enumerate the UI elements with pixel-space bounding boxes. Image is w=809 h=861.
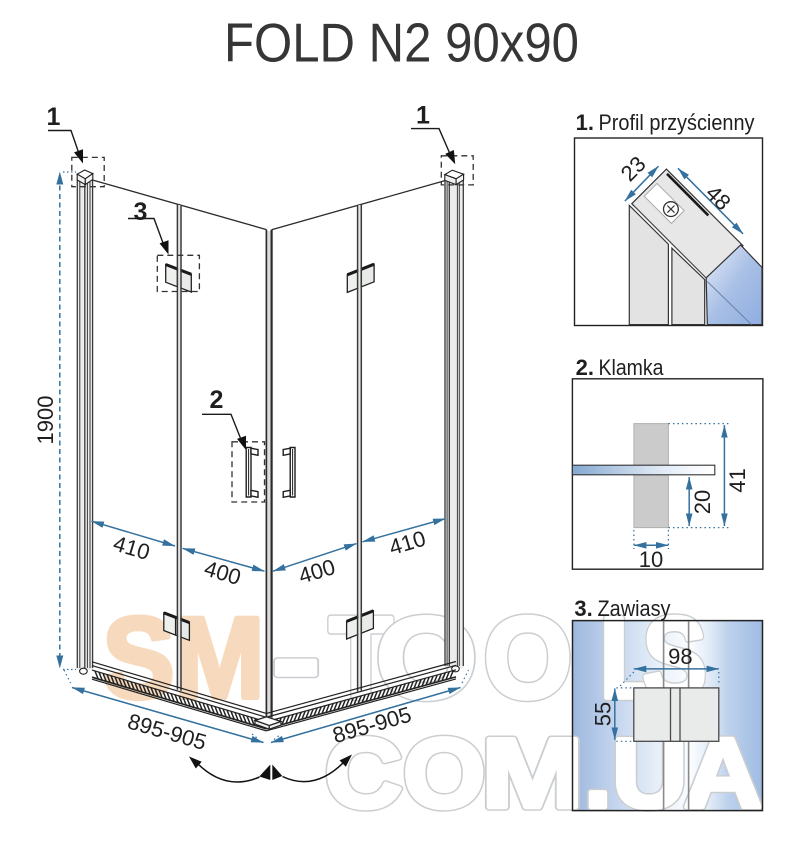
svg-text:3.: 3. — [574, 596, 592, 621]
svg-text:Klamka: Klamka — [599, 355, 665, 380]
svg-text:.: . — [584, 718, 611, 828]
svg-text:1.: 1. — [576, 110, 594, 135]
svg-text:M: M — [481, 718, 583, 828]
svg-text:Zawiasy: Zawiasy — [598, 596, 671, 621]
svg-text:1: 1 — [416, 102, 430, 130]
svg-text:2: 2 — [210, 386, 224, 414]
svg-text:O: O — [484, 595, 572, 723]
svg-text:-: - — [272, 595, 320, 723]
svg-text:55: 55 — [591, 702, 616, 726]
svg-text:10: 10 — [639, 547, 663, 572]
svg-text:FOLD N2 90x90: FOLD N2 90x90 — [224, 12, 579, 74]
svg-text:41: 41 — [725, 468, 750, 492]
svg-text:20: 20 — [690, 490, 715, 514]
svg-text:3: 3 — [134, 198, 148, 226]
svg-text:1: 1 — [47, 103, 61, 131]
svg-text:98: 98 — [668, 644, 692, 669]
svg-text:2.: 2. — [576, 355, 594, 380]
svg-text:Profil przyścienny: Profil przyścienny — [599, 110, 755, 135]
svg-text:1900: 1900 — [33, 396, 58, 445]
svg-text:O: O — [403, 718, 485, 828]
